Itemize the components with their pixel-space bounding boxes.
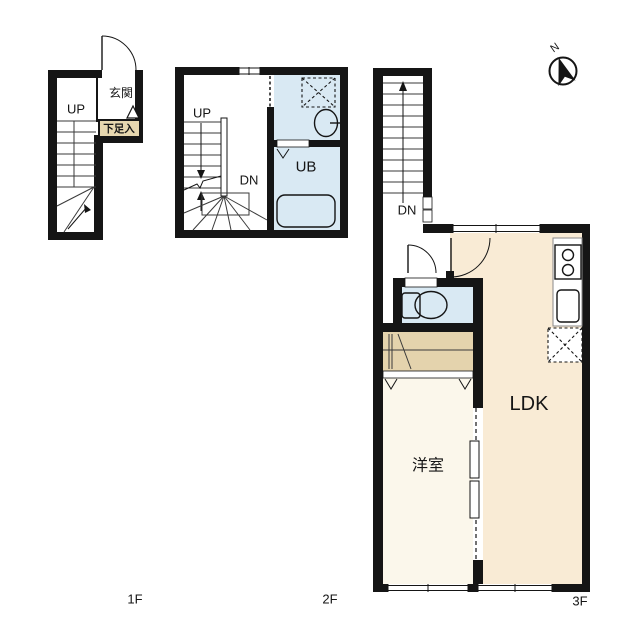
compass: N <box>548 41 576 86</box>
toilet-door-opening <box>405 278 437 287</box>
window-bedroom-south <box>388 584 468 592</box>
closet-floor <box>383 332 473 371</box>
kitchen-counter <box>553 238 582 326</box>
floor-1f-plan: UP 玄関 下足入 1F <box>48 36 143 607</box>
down-label-3f: DN <box>398 203 417 218</box>
bath-door-opening <box>277 140 309 147</box>
ldk-label: LDK <box>510 393 550 415</box>
bedroom-floor <box>383 378 473 584</box>
floor-label-3f: 3F <box>572 594 587 609</box>
washroom-folding-door <box>267 75 274 107</box>
floor-label-1f: 1F <box>127 592 142 607</box>
up-label-1f: UP <box>67 102 85 117</box>
shoe-cabinet-label: 下足入 <box>103 123 135 135</box>
window-ldk-south <box>478 584 552 592</box>
bedroom-label: 洋室 <box>412 457 444 475</box>
north-label: N <box>548 41 561 55</box>
refrigerator-space <box>548 328 582 362</box>
floorplan-image: UP 玄関 下足入 1F <box>0 0 640 640</box>
entrance-label: 玄関 <box>109 85 133 100</box>
up-label-2f: UP <box>193 106 211 121</box>
window-2f-top <box>239 67 260 75</box>
unit-bath-label: UB <box>296 159 317 176</box>
floor-2f-plan: UP DN UB 2F <box>175 67 348 607</box>
floor-3f-plan: DN LDK 洋室 3F <box>373 68 590 609</box>
down-label-2f: DN <box>240 173 259 188</box>
entrance-door-arc <box>102 36 136 70</box>
floorplan-svg: UP 玄関 下足入 1F <box>0 0 640 640</box>
floor-label-2f: 2F <box>322 592 337 607</box>
closet-front-track <box>383 371 473 378</box>
window-ldk-north <box>453 224 540 233</box>
